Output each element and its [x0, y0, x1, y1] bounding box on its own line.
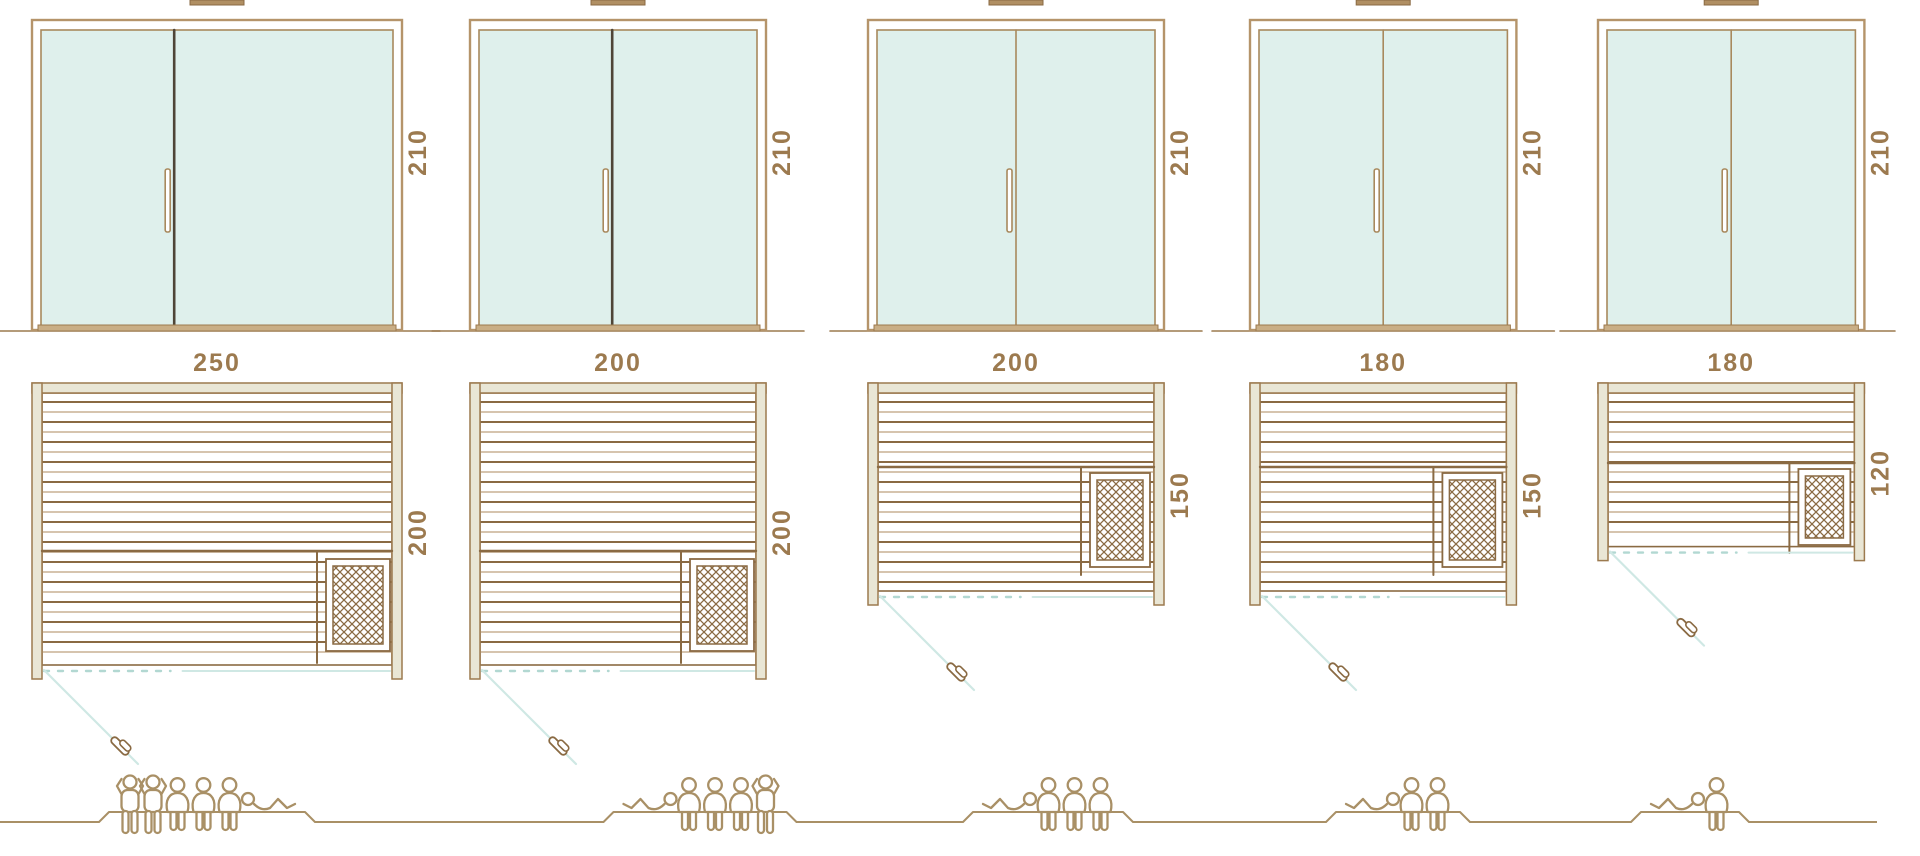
person-sitting-icon	[704, 778, 726, 830]
door-elevation	[1212, 0, 1554, 331]
plan-width-label: 200	[992, 349, 1040, 377]
person-sitting-icon	[219, 778, 241, 830]
capacity-group-1	[117, 776, 295, 834]
torso	[704, 793, 726, 812]
plan-door-handle-icon	[110, 733, 133, 756]
head	[759, 776, 772, 789]
door-sill	[874, 325, 1158, 331]
heater-grid	[1805, 476, 1843, 538]
plan-width-label: 200	[594, 349, 642, 377]
floor-plan	[1598, 383, 1864, 646]
head	[124, 776, 137, 789]
person-lying-icon	[242, 793, 295, 809]
person-sitting-icon	[730, 778, 752, 830]
leg	[758, 811, 764, 833]
roof-cap-icon	[190, 0, 244, 5]
plan-top-wall	[868, 383, 1164, 393]
head	[242, 793, 254, 805]
door-height-label: 210	[1166, 128, 1194, 176]
plan-door-handle-icon	[946, 659, 969, 682]
heater-icon	[1798, 469, 1850, 545]
door-elevation	[1560, 0, 1895, 331]
head	[1068, 778, 1082, 792]
plan-right-wall	[1854, 383, 1864, 561]
heater-grid	[1097, 480, 1143, 560]
plan-door-handle-icon	[1676, 615, 1699, 638]
sauna-dimension-diagram: 2102502002102002002102001502101801502101…	[0, 0, 1920, 856]
person-sitting-icon	[1427, 778, 1449, 830]
door-sill	[1604, 325, 1858, 331]
head	[1387, 793, 1399, 805]
plan-top-wall	[32, 383, 402, 393]
person-sitting-icon	[167, 778, 189, 830]
plan-right-wall	[1506, 383, 1516, 605]
head	[1094, 778, 1108, 792]
torso	[167, 793, 189, 812]
capacity-group-3	[983, 778, 1111, 830]
door-sill	[476, 325, 760, 331]
leg	[123, 811, 129, 833]
leg	[155, 811, 161, 833]
person-sitting-icon	[193, 778, 215, 830]
floor-plan	[470, 383, 766, 764]
torso	[1401, 793, 1423, 812]
person-sitting-icon	[1064, 778, 1086, 830]
plan-left-wall	[470, 383, 480, 679]
head	[197, 778, 211, 792]
roof-cap-icon	[1704, 0, 1758, 5]
sauna-model-2: 210200200	[432, 0, 804, 764]
floor-plan	[868, 383, 1164, 690]
head	[708, 778, 722, 792]
door-height-label: 210	[404, 128, 432, 176]
plan-left-wall	[1598, 383, 1608, 561]
head	[734, 778, 748, 792]
capacity-group-4	[1346, 778, 1448, 830]
capacity-group-2	[624, 776, 779, 834]
ground-profile-line	[0, 812, 1877, 822]
capacity-group-5	[1651, 778, 1727, 830]
leg	[767, 811, 773, 833]
torso	[1064, 793, 1086, 812]
person-standing-icon	[753, 776, 779, 834]
plan-depth-label: 200	[404, 508, 432, 556]
plan-door-handle-icon	[1328, 659, 1351, 682]
floor-plan	[1250, 383, 1516, 690]
door-elevation	[0, 0, 440, 331]
body	[983, 799, 1024, 809]
door-elevation	[432, 0, 804, 331]
door-handle-icon	[1007, 169, 1012, 232]
door-handle-icon	[1374, 169, 1379, 232]
door-handle-icon	[165, 169, 170, 232]
plan-left-wall	[1250, 383, 1260, 605]
person-lying-icon	[983, 793, 1036, 809]
torso	[219, 793, 241, 812]
glass-panels	[41, 30, 393, 326]
person-lying-icon	[1651, 793, 1704, 809]
head	[1692, 793, 1704, 805]
torso	[757, 790, 774, 812]
torso	[1038, 793, 1060, 812]
capacity-row	[0, 776, 1877, 834]
person-sitting-icon	[1401, 778, 1423, 830]
door-sill	[38, 325, 396, 331]
door-height-label: 210	[1866, 128, 1894, 176]
head	[682, 778, 696, 792]
roof-cap-icon	[989, 0, 1043, 5]
head	[171, 778, 185, 792]
heater-icon	[1090, 473, 1150, 567]
plan-door-handle-icon	[548, 733, 571, 756]
person-standing-icon	[117, 776, 143, 834]
plan-depth-label: 120	[1866, 449, 1894, 497]
body	[254, 799, 295, 809]
floor-plan	[32, 383, 402, 764]
plan-width-label: 180	[1359, 349, 1407, 377]
head	[1405, 778, 1419, 792]
plan-depth-label: 150	[1166, 471, 1194, 519]
person-sitting-icon	[678, 778, 700, 830]
heater-grid	[697, 566, 747, 644]
door-elevation	[830, 0, 1202, 331]
sauna-model-5: 210180120	[1560, 0, 1895, 646]
head	[665, 793, 677, 805]
door-handle-icon	[603, 169, 608, 232]
heater-grid	[1449, 480, 1495, 560]
heater-grid	[333, 566, 383, 644]
person-lying-icon	[1346, 793, 1399, 809]
sauna-model-1: 210250200	[0, 0, 440, 764]
plan-depth-label: 150	[1518, 471, 1546, 519]
person-sitting-icon	[1038, 778, 1060, 830]
sauna-model-3: 210200150	[830, 0, 1202, 690]
plan-width-label: 180	[1707, 349, 1755, 377]
head	[147, 776, 160, 789]
torso	[678, 793, 700, 812]
head	[1431, 778, 1445, 792]
door-handle-icon	[1722, 169, 1727, 232]
plan-top-wall	[470, 383, 766, 393]
head	[1024, 793, 1036, 805]
body	[1651, 799, 1692, 809]
torso	[1706, 793, 1728, 812]
person-sitting-icon	[1706, 778, 1728, 830]
plan-top-wall	[1598, 383, 1864, 393]
leg	[132, 811, 138, 833]
plan-top-wall	[1250, 383, 1516, 393]
plan-left-wall	[32, 383, 42, 679]
glass-panels	[479, 30, 757, 326]
plan-right-wall	[1154, 383, 1164, 605]
torso	[145, 790, 162, 812]
roof-cap-icon	[591, 0, 645, 5]
head	[1710, 778, 1724, 792]
door-height-label: 210	[1518, 128, 1546, 176]
diagram-canvas: 2102502002102002002102001502101801502101…	[0, 0, 1920, 856]
plan-width-label: 250	[193, 349, 241, 377]
person-sitting-icon	[1090, 778, 1112, 830]
door-sill	[1256, 325, 1510, 331]
roof-cap-icon	[1356, 0, 1410, 5]
torso	[1427, 793, 1449, 812]
torso	[193, 793, 215, 812]
torso	[122, 790, 139, 812]
plan-depth-label: 200	[768, 508, 796, 556]
plan-right-wall	[392, 383, 402, 679]
person-lying-icon	[624, 793, 677, 809]
person-standing-icon	[140, 776, 166, 834]
heater-icon	[1442, 473, 1502, 567]
torso	[1090, 793, 1112, 812]
door-height-label: 210	[768, 128, 796, 176]
body	[624, 799, 665, 809]
heater-icon	[690, 559, 754, 651]
body	[1346, 799, 1387, 809]
head	[1042, 778, 1056, 792]
torso	[730, 793, 752, 812]
sauna-model-4: 210180150	[1212, 0, 1554, 690]
plan-right-wall	[756, 383, 766, 679]
leg	[146, 811, 152, 833]
heater-icon	[326, 559, 390, 651]
plan-left-wall	[868, 383, 878, 605]
head	[223, 778, 237, 792]
